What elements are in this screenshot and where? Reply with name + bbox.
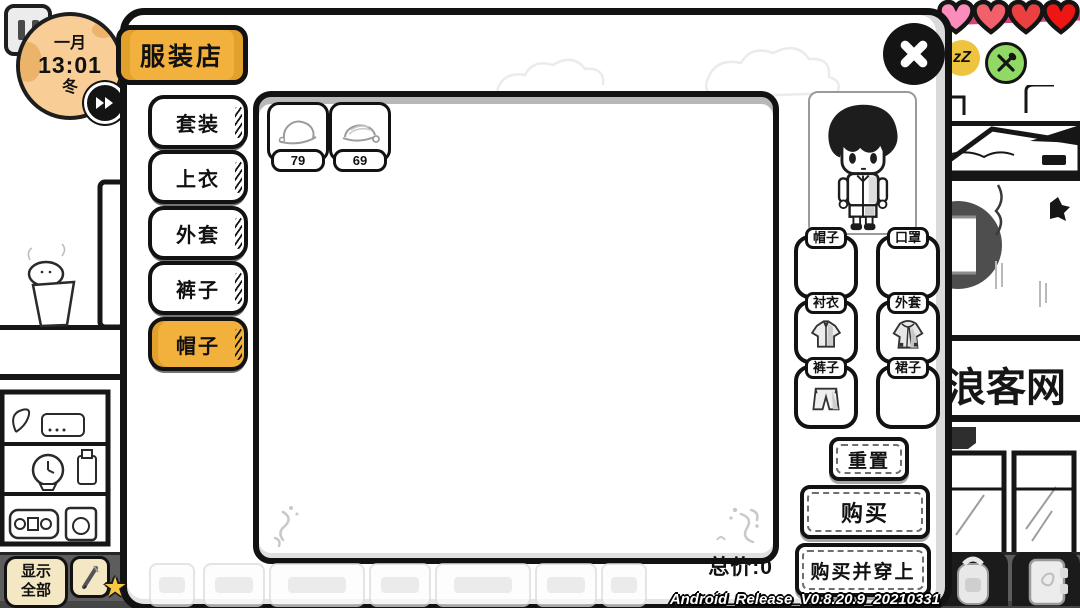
beanie-icon bbox=[337, 114, 383, 150]
category-tab-tops[interactable]: 上衣 bbox=[148, 150, 248, 204]
dialog-title: 服装店 bbox=[116, 25, 248, 85]
show-all-label-line1: 显示 bbox=[21, 563, 51, 582]
food-status-icon bbox=[985, 42, 1027, 84]
pants-icon bbox=[810, 385, 842, 413]
slot-label-text: 外套 bbox=[895, 295, 921, 310]
item-price: 79 bbox=[271, 149, 325, 172]
item-price: 69 bbox=[333, 149, 387, 172]
category-label: 帽子 bbox=[176, 330, 220, 359]
coat-icon bbox=[891, 318, 925, 350]
clock-month: 一月 bbox=[54, 35, 86, 53]
equip-slot-label: 衬衣 bbox=[805, 292, 847, 314]
equip-slot-label: 口罩 bbox=[887, 227, 929, 249]
equip-slot-label: 裙子 bbox=[887, 357, 929, 379]
game-screen: 浪客网 一月 13:01 冬 bbox=[0, 0, 1080, 608]
category-tab-hats[interactable]: 帽子 bbox=[148, 317, 248, 371]
close-button[interactable] bbox=[883, 23, 945, 85]
notebook-icon bbox=[1012, 552, 1080, 606]
background-left-scenery bbox=[0, 170, 126, 560]
equip-slot-hat[interactable]: 帽子 bbox=[794, 235, 858, 299]
buy-and-wear-button-label: 购买并穿上 bbox=[810, 557, 915, 584]
shirt-icon bbox=[809, 319, 843, 349]
category-tab-pants[interactable]: 裤子 bbox=[148, 261, 248, 315]
price-text: 69 bbox=[353, 153, 367, 168]
heart-icon bbox=[972, 0, 1010, 36]
show-all-button[interactable]: 显示 全部 bbox=[4, 556, 68, 608]
category-tab-coats[interactable]: 外套 bbox=[148, 206, 248, 260]
category-label: 上衣 bbox=[176, 163, 220, 192]
reset-button-label: 重置 bbox=[848, 446, 890, 473]
dimmed-hotbar-button bbox=[435, 563, 531, 607]
character-preview bbox=[808, 91, 917, 235]
equip-slot-label: 裤子 bbox=[805, 357, 847, 379]
dialog-title-text: 服装店 bbox=[140, 37, 224, 73]
category-tab-suits[interactable]: 套装 bbox=[148, 95, 248, 149]
version-text: Android_Release_V0.8.20.9_20210331 bbox=[670, 591, 940, 608]
heart-icon bbox=[1042, 0, 1080, 36]
background-right-scenery: 浪客网 bbox=[930, 85, 1080, 555]
slot-label-text: 口罩 bbox=[895, 230, 921, 245]
slot-label-text: 衬衣 bbox=[813, 295, 839, 310]
equip-slot-shirt[interactable]: 衬衣 bbox=[794, 300, 858, 364]
category-label: 裤子 bbox=[176, 274, 220, 303]
dimmed-hotbar-button bbox=[369, 563, 431, 607]
hearts-meter bbox=[940, 0, 1080, 36]
clock-season: 冬 bbox=[62, 79, 78, 97]
show-all-label-line2: 全部 bbox=[21, 582, 51, 601]
slot-label-text: 裤子 bbox=[813, 360, 839, 375]
clothing-shop-dialog: 服装店 套装 上衣 外套 裤子 帽子 79 bbox=[120, 8, 952, 608]
dimmed-hotbar-button bbox=[535, 563, 597, 607]
cap-icon bbox=[275, 114, 321, 150]
buy-button[interactable]: 购买 bbox=[800, 485, 930, 539]
buy-button-label: 购买 bbox=[841, 496, 889, 528]
corner-squiggle bbox=[711, 504, 763, 550]
fast-forward-icon bbox=[94, 95, 116, 111]
equip-slot-mask[interactable]: 口罩 bbox=[876, 235, 940, 299]
equip-slot-label: 帽子 bbox=[805, 227, 847, 249]
fork-spoon-icon bbox=[993, 50, 1019, 76]
heart-icon bbox=[1007, 0, 1045, 36]
shop-sign-text: 浪客网 bbox=[946, 366, 1066, 410]
reset-button[interactable]: 重置 bbox=[829, 437, 909, 481]
star-item-icon[interactable]: ★ bbox=[103, 572, 127, 603]
item-card-beanie[interactable]: 69 bbox=[329, 102, 391, 162]
dimmed-hotbar-button bbox=[601, 563, 647, 607]
slot-label-text: 裙子 bbox=[895, 360, 921, 375]
dimmed-hotbar-button bbox=[149, 563, 195, 607]
equip-slot-skirt[interactable]: 裙子 bbox=[876, 365, 940, 429]
corner-squiggle bbox=[269, 504, 309, 548]
clock-time: 13:01 bbox=[38, 53, 102, 79]
equip-slot-coat[interactable]: 外套 bbox=[876, 300, 940, 364]
slot-label-text: 帽子 bbox=[813, 230, 839, 245]
sleep-status-text: zZ bbox=[953, 49, 971, 67]
equip-slot-label: 外套 bbox=[887, 292, 929, 314]
category-label: 套装 bbox=[176, 108, 220, 137]
character-avatar bbox=[813, 99, 913, 233]
item-grid: 79 69 bbox=[253, 91, 779, 564]
item-card-cap[interactable]: 79 bbox=[267, 102, 329, 162]
dimmed-hotbar-button bbox=[269, 563, 365, 607]
brush-icon bbox=[78, 563, 102, 591]
price-text: 79 bbox=[291, 153, 305, 168]
category-label: 外套 bbox=[176, 219, 220, 248]
buy-and-wear-button[interactable]: 购买并穿上 bbox=[795, 543, 931, 597]
hotbar-slot-notebook[interactable] bbox=[1012, 552, 1080, 606]
dimmed-hotbar-button bbox=[203, 563, 265, 607]
equip-slot-pants[interactable]: 裤子 bbox=[794, 365, 858, 429]
